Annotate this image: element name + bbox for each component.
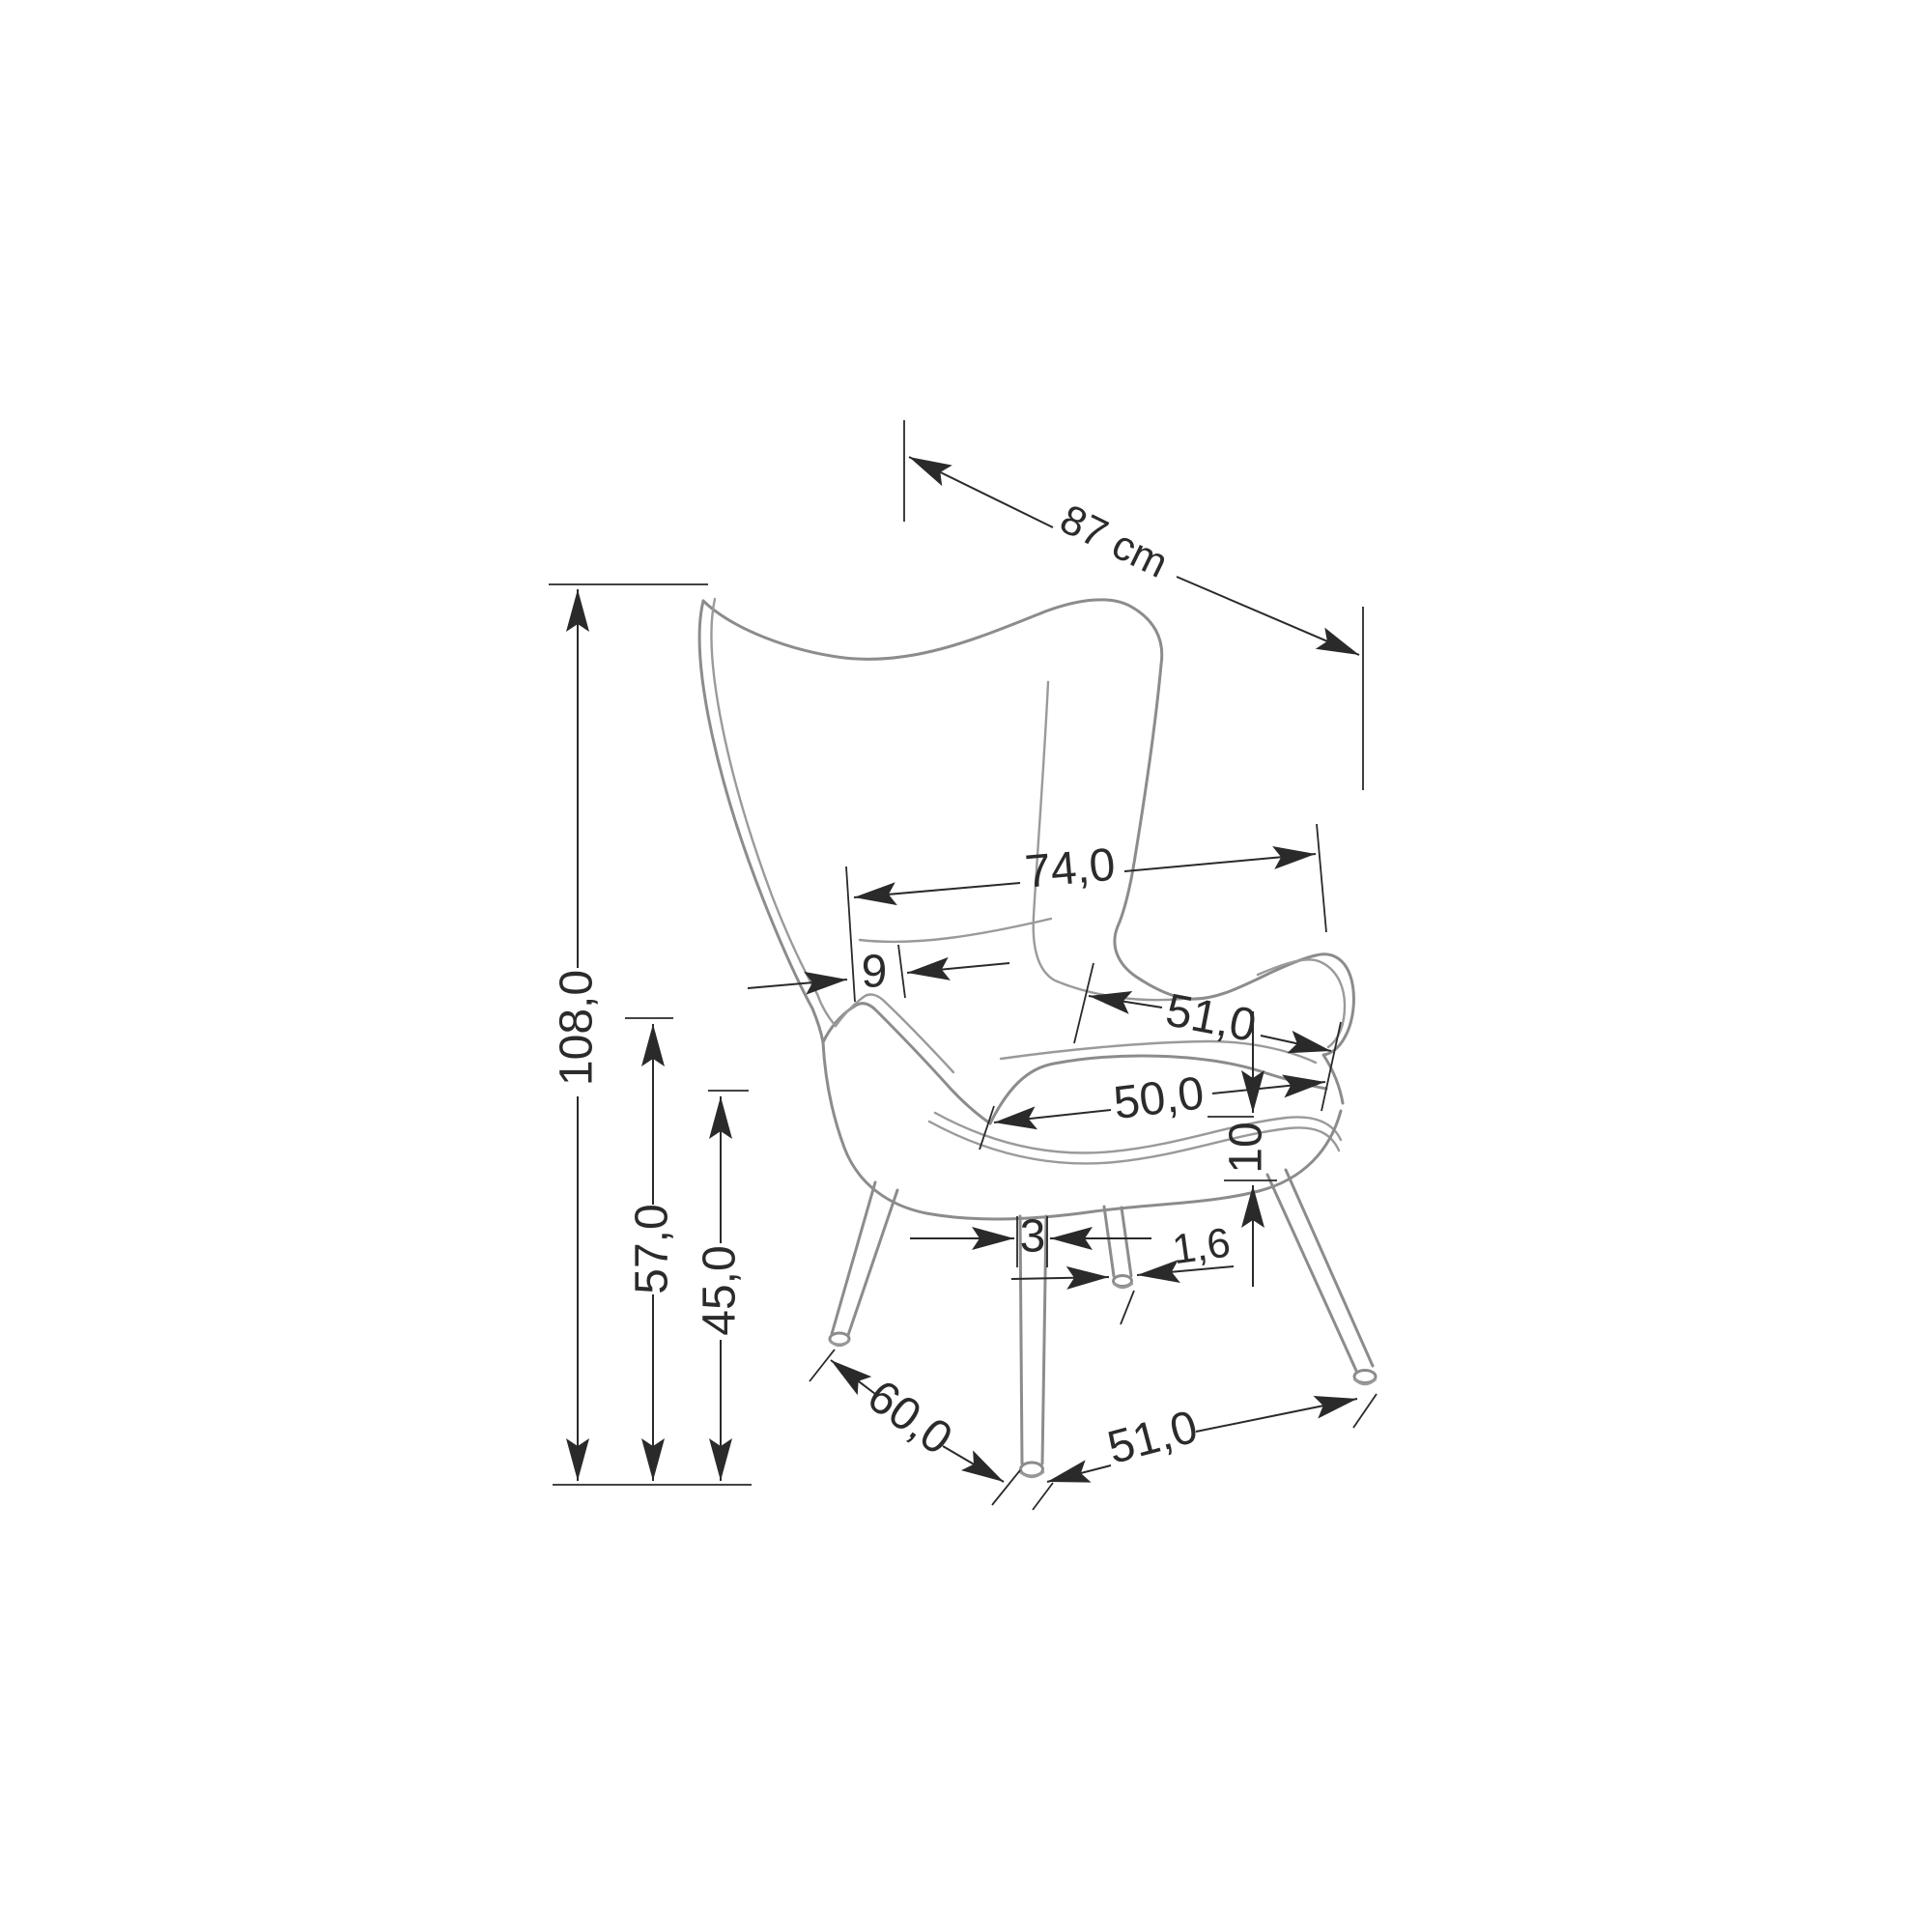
- dim-back-width-label: 74,0: [1023, 839, 1118, 898]
- dim-armrest-height: 57,0: [625, 1018, 678, 1481]
- dim-overall-depth-label: 87 cm: [1053, 496, 1175, 586]
- dimensions: 87 cm 74,0 9 51,0: [549, 420, 1377, 1510]
- dim-seat-height-label: 45,0: [695, 1245, 746, 1335]
- seat-rim-piping-lower: [929, 1122, 1339, 1163]
- dim-leg-spread-side-label: 60,0: [858, 1371, 961, 1465]
- dim-leg-spread-front: 51,0: [1033, 1394, 1377, 1510]
- seat-cushion-top-edge: [1001, 1041, 1316, 1063]
- back-center-leg: [1104, 1207, 1132, 1288]
- dim-back-side-thickness: 9: [748, 945, 1009, 998]
- right-armrest-scroll: [1316, 954, 1353, 1103]
- drawing-page: 87 cm 74,0 9 51,0: [0, 0, 1932, 1932]
- dim-armrest-height-label: 57,0: [627, 1204, 678, 1293]
- dim-seat-width-label: 50,0: [1111, 1067, 1207, 1129]
- left-wing-piping: [817, 994, 953, 1072]
- dim-leg-top-width-label: 3: [1020, 1211, 1046, 1263]
- dim-leg-top-width: 3: [910, 1211, 1151, 1267]
- dim-overall-height: 108,0: [549, 584, 708, 1481]
- chair-back-right-edge: [1115, 665, 1316, 999]
- dim-leg-spread-side: 60,0: [810, 1350, 1020, 1505]
- back-right-leg: [1267, 1170, 1376, 1384]
- front-left-leg: [830, 1182, 897, 1346]
- dim-seat-height: 45,0: [695, 1091, 749, 1481]
- dim-frame-thickness-label: 10: [1221, 1122, 1272, 1173]
- dim-leg-spread-front-label: 51,0: [1102, 1402, 1203, 1474]
- left-wing-and-armrest-edge: [823, 1004, 990, 1123]
- dim-seat-width: 50,0: [980, 1067, 1325, 1150]
- chair-back-top-edge: [703, 600, 1162, 665]
- chair-back-left-edge: [699, 601, 823, 1042]
- dim-back-side-thickness-label: 9: [862, 947, 888, 998]
- dim-overall-height-label: 108,0: [552, 970, 603, 1086]
- dim-back-width: 74,0: [846, 824, 1326, 1002]
- backrest-lumbar-seam: [860, 919, 1051, 942]
- dim-overall-depth: 87 cm: [904, 420, 1363, 790]
- dim-foot-diameter-label: 1,6: [1170, 1219, 1234, 1273]
- dimension-drawing-canvas: 87 cm 74,0 9 51,0: [0, 0, 1932, 1932]
